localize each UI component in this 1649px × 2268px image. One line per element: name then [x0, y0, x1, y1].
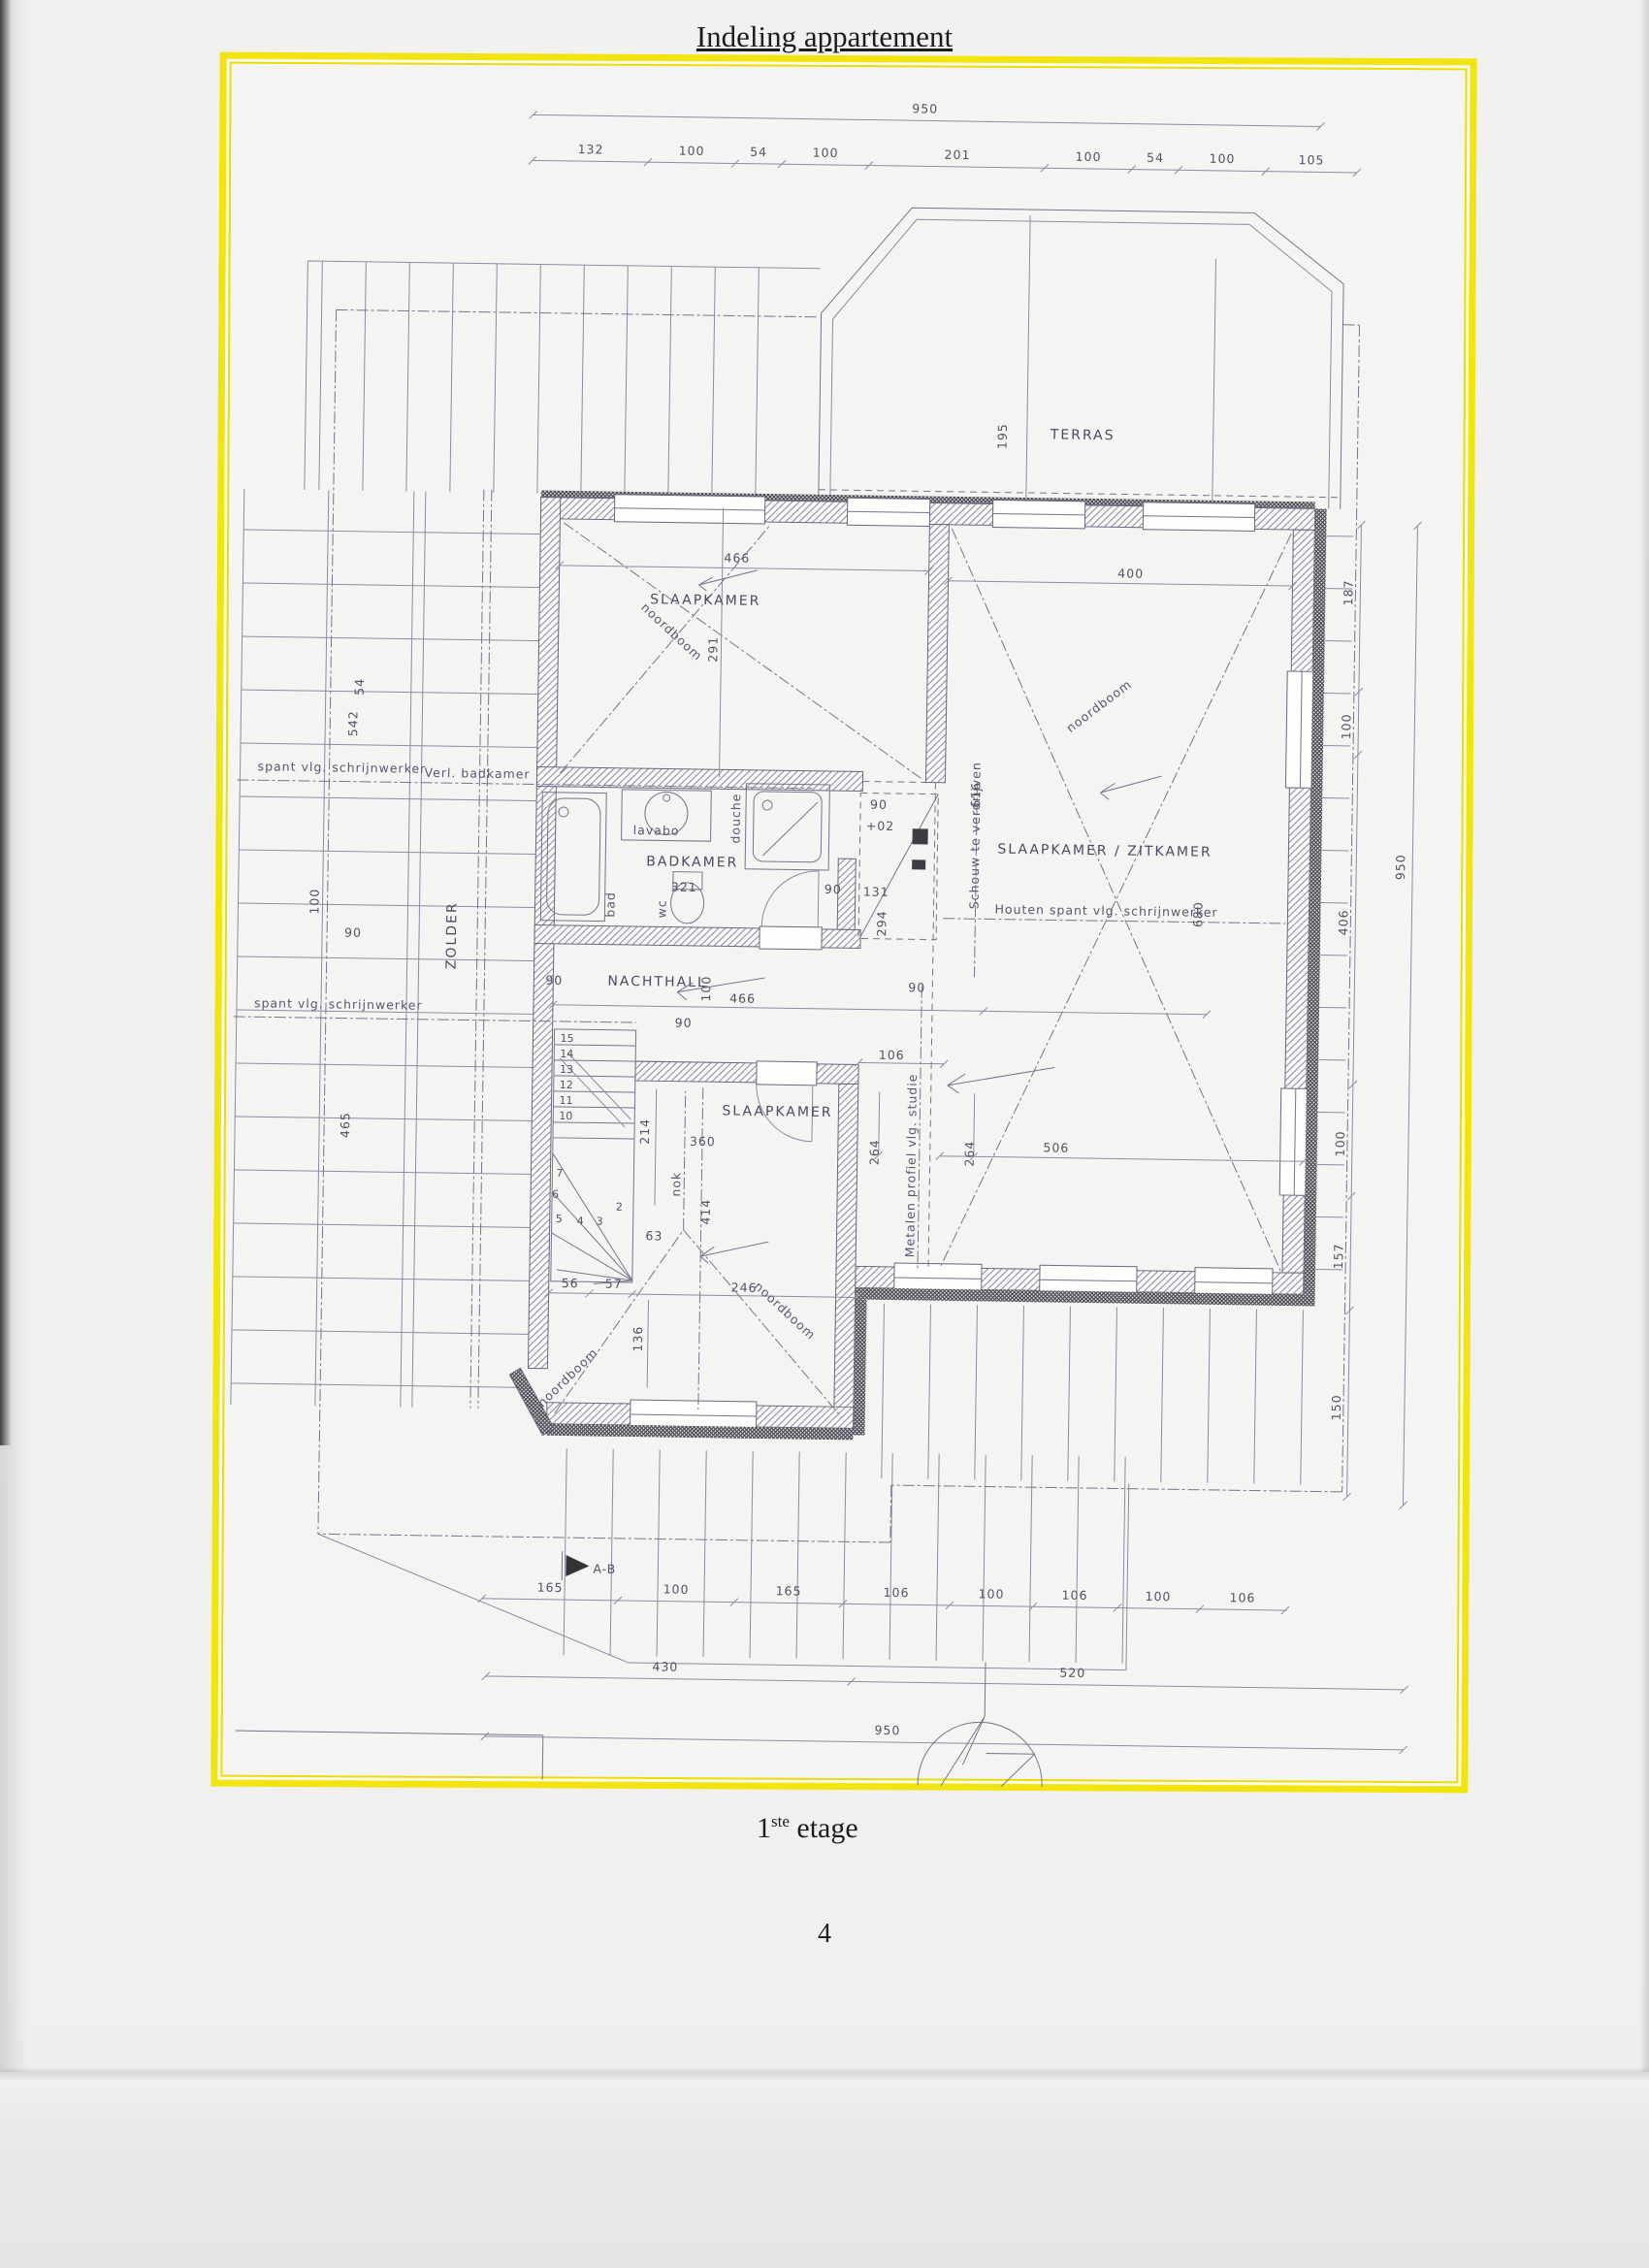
dim-bottom-seg: 100	[979, 1586, 1005, 1601]
room-label-slaapkamer-bottom: SLAAPKAMER	[722, 1103, 832, 1120]
dim-214: 214	[637, 1118, 652, 1145]
stair-number: 11	[559, 1094, 572, 1107]
note-metalen-profiel: Metalen profiel vlg. studie	[902, 1073, 920, 1257]
dim-top-seg: 54	[1147, 150, 1164, 165]
stair-number: 4	[577, 1215, 584, 1227]
dim-bottom-total: 950	[874, 1723, 900, 1737]
dim-terras-195: 195	[995, 423, 1010, 449]
dim-bottom-seg: 100	[663, 1582, 690, 1597]
dim-131: 131	[863, 885, 889, 899]
bottom-dimension-lines	[476, 1550, 1410, 1754]
note-spant: spant vlg. schrijnwerker	[254, 995, 423, 1013]
dim-right-seg: 100	[1333, 1130, 1347, 1156]
terras-outline	[819, 207, 1344, 509]
right-dimension-lines	[1342, 521, 1421, 1509]
dim-90-door: 90	[870, 797, 888, 812]
top-dimension-lines: 950 132 100 54 100 201 100 54 100 105	[529, 95, 1362, 177]
stair-number: 2	[616, 1201, 623, 1214]
apartment-walls	[508, 490, 1326, 1446]
room-label-slaapkamer-zitkamer: SLAAPKAMER / ZITKAMER	[997, 842, 1212, 860]
dim-321: 321	[671, 880, 697, 894]
dim-400: 400	[1117, 566, 1144, 580]
stair-number: 15	[560, 1032, 573, 1045]
dim-90-hall: 90	[675, 1016, 693, 1030]
dim-right-seg: 406	[1336, 909, 1350, 935]
stair-number: 12	[560, 1079, 573, 1091]
yellow-border-frame: 950 132 100 54 100 201 100 54 100 105 TE…	[210, 52, 1476, 1794]
door-arc-bathroom	[761, 870, 819, 927]
dim-106: 106	[879, 1048, 905, 1062]
dim-291: 291	[705, 636, 720, 663]
dim-360: 360	[690, 1134, 716, 1149]
note-noordboom: noordboom	[752, 1279, 819, 1343]
floor-suffix: ste	[771, 1812, 790, 1831]
dim-136: 136	[630, 1326, 645, 1352]
room-label-slaapkamer-top: SLAAPKAMER	[650, 592, 760, 609]
room-label-terras: TERRAS	[1050, 427, 1115, 443]
dim-left-54: 54	[352, 678, 367, 696]
dim-bottom-520: 520	[1059, 1666, 1085, 1680]
floor-caption: 1ste etage	[757, 1812, 858, 1845]
chimney-shaft	[858, 793, 938, 939]
title-block-cropped: DIERING	[234, 1731, 543, 1794]
roof-plane-right	[882, 530, 1353, 1485]
page-title: Indeling appartement	[0, 19, 1649, 54]
dim-bottom-seg: 165	[537, 1580, 564, 1595]
dim-right-seg: 187	[1341, 579, 1355, 605]
shower	[745, 784, 829, 870]
dim-246: 246	[731, 1280, 758, 1295]
dim-616: 616	[968, 782, 983, 808]
dim-57: 57	[605, 1277, 623, 1291]
stair-number: 10	[559, 1110, 572, 1122]
dim-top-seg: 100	[813, 146, 839, 160]
dim-left-542: 542	[345, 710, 360, 736]
dim-left-465: 465	[338, 1112, 352, 1138]
company-logo-letters: DIERING	[245, 1787, 522, 1793]
note-verl-badkamer: Verl. badkamer	[424, 765, 530, 782]
page-title-text: Indeling appartement	[696, 19, 953, 53]
dim-plus02: +02	[866, 819, 895, 833]
stair-number: 14	[560, 1048, 573, 1060]
stair-number: 3	[597, 1215, 603, 1227]
dim-top-seg: 100	[679, 144, 705, 158]
note-houten-spant: Houten spant vlg. schrijnwerker	[994, 902, 1217, 920]
dim-680: 680	[1190, 901, 1205, 927]
dim-90-hall: 90	[545, 973, 563, 988]
note-noordboom: noordboom	[638, 599, 705, 664]
roof-plane-left	[231, 486, 545, 1409]
note-nok: nok	[668, 1172, 683, 1197]
note-spant: spant vlg. schrijnwerker	[258, 759, 427, 776]
room-label-nachthall: NACHTHALL	[607, 974, 707, 991]
dim-56: 56	[562, 1276, 579, 1290]
dim-top-seg: 201	[945, 147, 971, 162]
dim-top-seg: 100	[1076, 149, 1102, 164]
dim-top-seg: 54	[750, 145, 767, 159]
dim-294: 294	[874, 910, 889, 936]
room-label-badkamer: BADKAMER	[646, 854, 738, 870]
dim-506: 506	[1043, 1140, 1069, 1154]
dim-bottom-seg: 106	[884, 1585, 910, 1600]
dim-left-100: 100	[307, 889, 321, 915]
page-number: 4	[0, 1919, 1649, 1950]
dim-right-seg: 157	[1331, 1243, 1345, 1269]
fixture-label-wc: wc	[654, 899, 668, 918]
room-label-zolder: ZOLDER	[444, 901, 461, 969]
stair-number: 7	[556, 1167, 563, 1180]
dim-bottom-seg: 165	[776, 1583, 802, 1598]
stair-number: 5	[556, 1213, 563, 1225]
dim-264: 264	[962, 1141, 977, 1167]
fixture-label-lavabo: lavabo	[633, 823, 680, 838]
stair-number: 13	[560, 1063, 573, 1076]
section-marker-ab: A-B	[593, 1561, 616, 1575]
scan-shadow-left	[0, 0, 12, 1445]
dim-90-hall: 90	[908, 980, 925, 994]
stair-number: 6	[552, 1188, 559, 1201]
floor-plan-drawing: 950 132 100 54 100 201 100 54 100 105 TE…	[208, 54, 1476, 1794]
dim-top-total: 950	[912, 101, 938, 115]
dim-bottom-430: 430	[652, 1659, 678, 1673]
fixture-label-bad: bad	[602, 891, 617, 918]
dim-right-total: 950	[1393, 854, 1407, 880]
dim-bottom-seg: 106	[1229, 1590, 1255, 1604]
dim-bottom-seg: 106	[1062, 1588, 1088, 1603]
dim-left-90: 90	[344, 925, 362, 940]
dim-right-seg: 150	[1329, 1394, 1343, 1420]
roof-plane-bottom	[316, 1444, 1129, 1669]
floor-number: 1	[757, 1812, 771, 1844]
dim-top-seg: 132	[578, 142, 604, 156]
dim-bottom-seg: 100	[1145, 1589, 1171, 1604]
scan-paper-edge-bottom	[0, 2072, 1649, 2268]
dim-63: 63	[645, 1228, 663, 1243]
fixture-label-douche: douche	[727, 793, 743, 843]
dim-466-top: 466	[724, 550, 750, 565]
dim-90-door: 90	[824, 882, 842, 896]
note-noordboom: noordboom	[1063, 676, 1134, 735]
dim-414: 414	[698, 1199, 713, 1225]
dim-top-seg: 100	[1209, 151, 1235, 166]
architect-logo-az	[917, 1661, 1044, 1793]
dim-466-hall: 466	[729, 990, 756, 1005]
dim-top-seg: 105	[1298, 152, 1324, 167]
roof-plane-top-left	[305, 261, 820, 498]
dim-264: 264	[867, 1139, 882, 1165]
dim-right-seg: 100	[1339, 713, 1353, 739]
floor-word: etage	[796, 1812, 857, 1844]
